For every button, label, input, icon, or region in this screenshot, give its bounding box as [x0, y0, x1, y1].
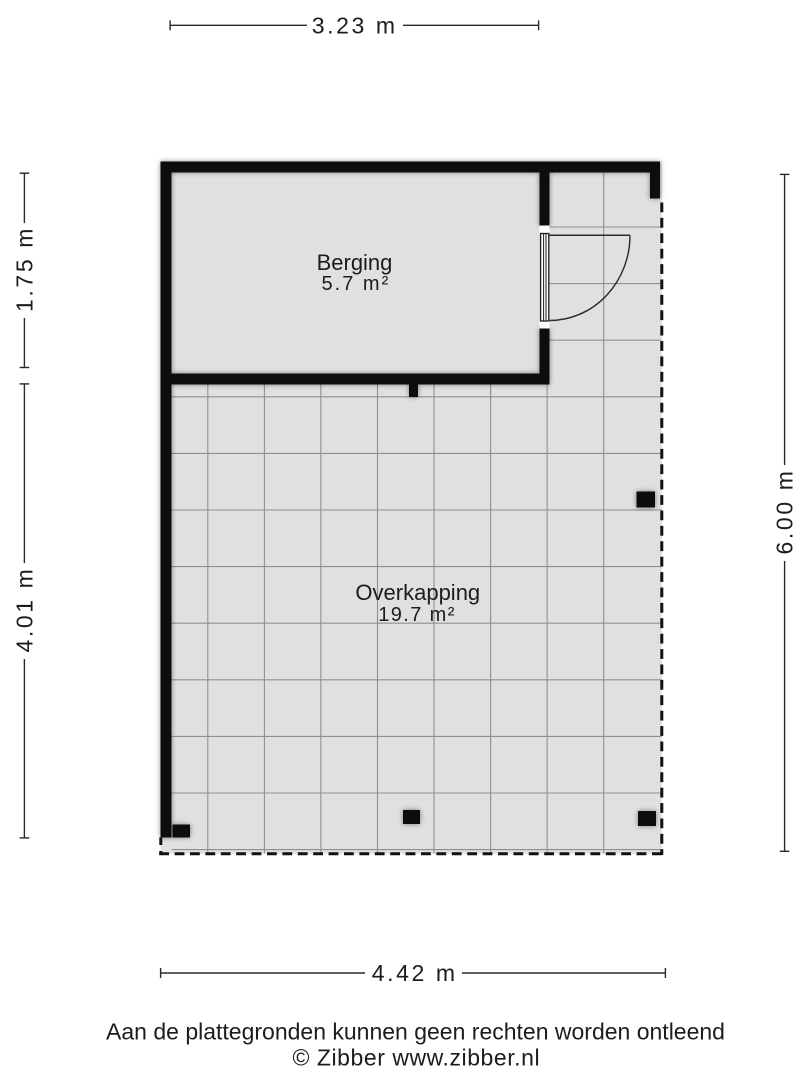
svg-text:4.42 m: 4.42 m	[372, 960, 458, 986]
svg-text:6.00 m: 6.00 m	[772, 469, 798, 555]
svg-text:19.7 m²: 19.7 m²	[378, 604, 456, 626]
svg-text:© Zibber www.zibber.nl: © Zibber www.zibber.nl	[292, 1045, 540, 1071]
svg-text:Berging: Berging	[317, 250, 393, 275]
svg-text:1.75 m: 1.75 m	[12, 226, 38, 312]
svg-text:Aan de plattegronden kunnen ge: Aan de plattegronden kunnen geen rechten…	[106, 1019, 725, 1045]
svg-text:5.7 m²: 5.7 m²	[322, 273, 391, 295]
svg-text:Overkapping: Overkapping	[355, 580, 480, 605]
svg-text:3.23 m: 3.23 m	[312, 12, 398, 38]
svg-text:4.01 m: 4.01 m	[12, 567, 38, 653]
